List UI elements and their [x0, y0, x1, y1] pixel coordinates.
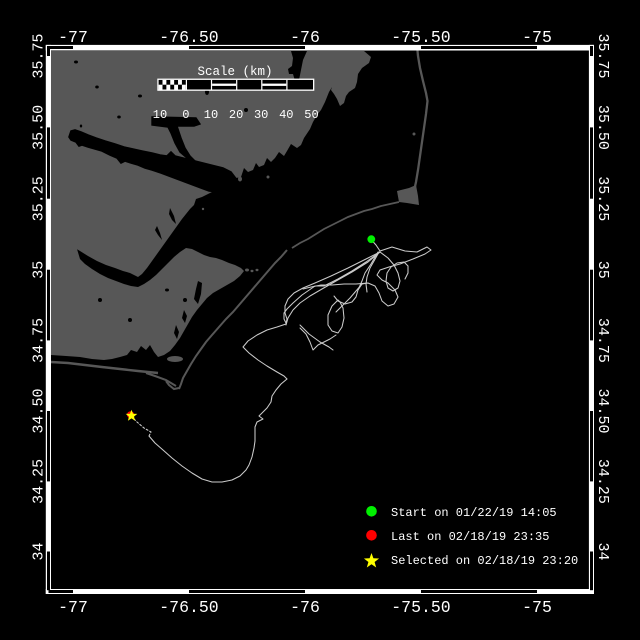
svg-text:34.75: 34.75: [31, 318, 48, 363]
svg-text:Selected on 02/18/19 23:20: Selected on 02/18/19 23:20: [391, 554, 578, 568]
svg-text:34: 34: [594, 542, 611, 560]
svg-text:Scale (km): Scale (km): [197, 65, 272, 79]
svg-text:35: 35: [31, 261, 48, 279]
svg-text:35: 35: [594, 261, 611, 279]
svg-text:35.25: 35.25: [594, 176, 611, 221]
svg-text:34.50: 34.50: [31, 388, 48, 433]
svg-text:50: 50: [304, 108, 318, 122]
svg-text:35.50: 35.50: [594, 105, 611, 150]
svg-text:35.75: 35.75: [31, 33, 48, 78]
svg-text:-76: -76: [290, 28, 320, 47]
svg-text:34.50: 34.50: [594, 388, 611, 433]
svg-text:0: 0: [182, 108, 189, 122]
svg-text:-76.50: -76.50: [159, 28, 218, 47]
svg-text:-75.50: -75.50: [391, 28, 450, 47]
svg-text:Last on 02/18/19 23:35: Last on 02/18/19 23:35: [391, 530, 549, 544]
svg-text:-75.50: -75.50: [391, 598, 450, 617]
svg-text:35.50: 35.50: [31, 105, 48, 150]
svg-text:40: 40: [279, 108, 293, 122]
svg-text:-75: -75: [522, 28, 552, 47]
svg-text:34.25: 34.25: [594, 459, 611, 504]
svg-text:-76: -76: [290, 598, 320, 617]
svg-text:20: 20: [229, 108, 243, 122]
svg-text:10: 10: [153, 108, 167, 122]
svg-text:34: 34: [31, 542, 48, 560]
svg-text:-76.50: -76.50: [159, 598, 218, 617]
svg-text:34.25: 34.25: [31, 459, 48, 504]
svg-text:34.75: 34.75: [594, 318, 611, 363]
svg-text:-77: -77: [58, 28, 88, 47]
svg-text:10: 10: [204, 108, 218, 122]
svg-text:30: 30: [254, 108, 268, 122]
svg-text:-77: -77: [58, 598, 88, 617]
svg-text:-75: -75: [522, 598, 552, 617]
svg-text:Start on 01/22/19 14:05: Start on 01/22/19 14:05: [391, 506, 557, 520]
svg-text:35.75: 35.75: [594, 33, 611, 78]
svg-text:35.25: 35.25: [31, 176, 48, 221]
